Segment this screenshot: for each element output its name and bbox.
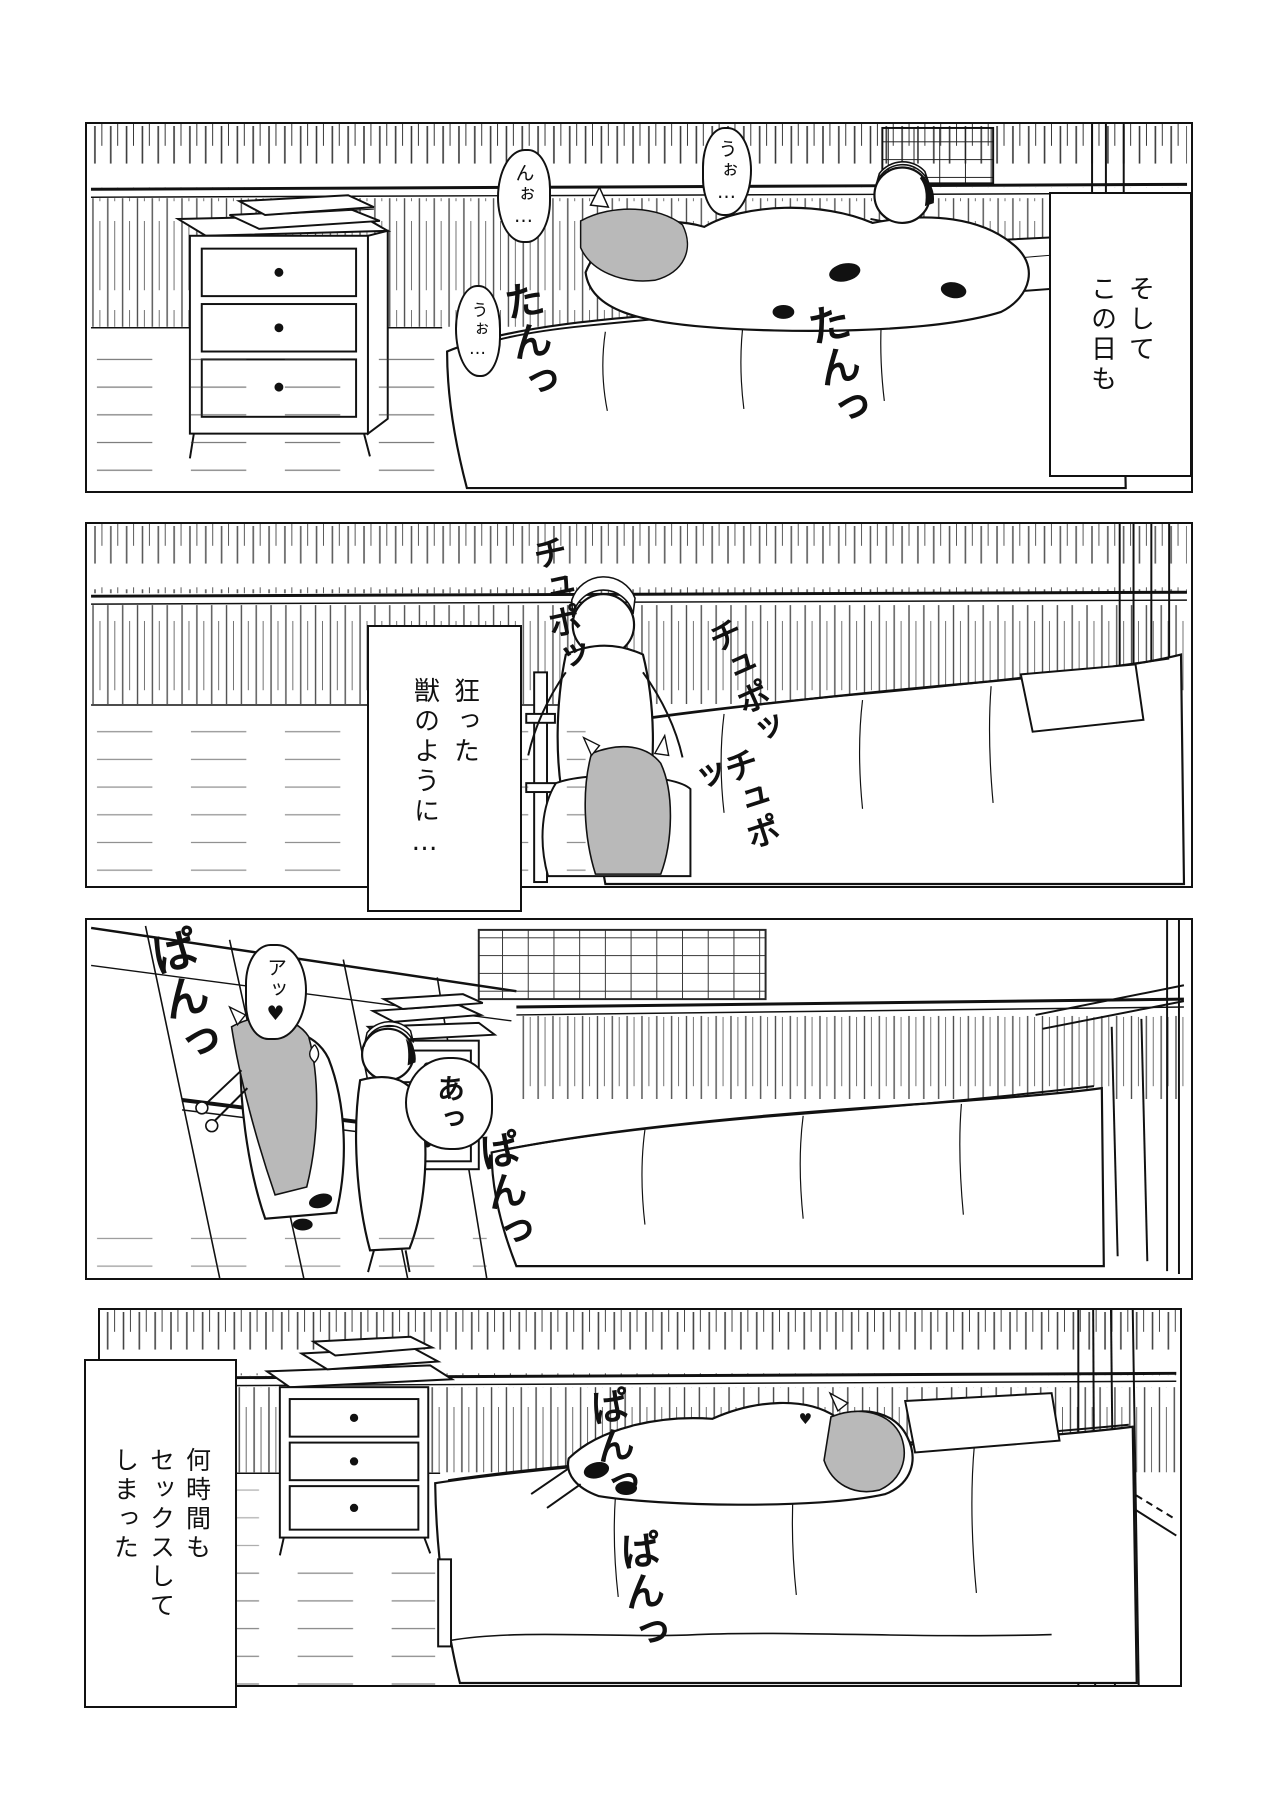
bed bbox=[492, 1086, 1104, 1266]
panel-4: 何時間も セックスして しまった ぱんっ ぱんっ ♥ bbox=[98, 1308, 1182, 1687]
panel-3: アッ♥ あっ ぱんっ ぱんっ bbox=[85, 918, 1193, 1280]
speech-bubble: んぉ… bbox=[497, 149, 551, 243]
speech-bubble: うぉ… bbox=[455, 285, 501, 377]
head bbox=[362, 1029, 413, 1080]
caption-line: この日も bbox=[1083, 275, 1121, 395]
ceiling-hatch bbox=[91, 524, 1187, 593]
dresser bbox=[267, 1365, 452, 1555]
floorboards bbox=[91, 1217, 487, 1278]
bubble-text: んぉ… bbox=[511, 163, 538, 229]
bubble-text: あっ bbox=[429, 1074, 469, 1134]
speech-bubble: あっ bbox=[405, 1057, 493, 1150]
hand bbox=[196, 1102, 208, 1114]
hair bbox=[824, 1411, 904, 1491]
ceiling-hatch bbox=[91, 124, 1187, 187]
caption-line: 狂った bbox=[445, 677, 485, 861]
caption-line: 何時間も bbox=[179, 1447, 215, 1621]
caption-line: そして bbox=[1121, 275, 1159, 395]
bubble-text: うぉ… bbox=[466, 301, 491, 361]
hand bbox=[206, 1120, 218, 1132]
caption-line: 獣のように… bbox=[405, 677, 445, 861]
horn bbox=[591, 187, 609, 207]
bedpost bbox=[438, 1559, 451, 1646]
bubble-text: うぉ… bbox=[714, 139, 741, 205]
window bbox=[479, 930, 766, 999]
caption-line: セックスして bbox=[143, 1447, 179, 1621]
manga-page: そして この日も うぉ… んぉ… うぉ… たんっ たんっ bbox=[0, 0, 1280, 1817]
narration-box: 何時間も セックスして しまった bbox=[84, 1359, 237, 1708]
sfx-pan-2: ぱんっ bbox=[614, 1528, 667, 1655]
panel-1-artwork bbox=[87, 124, 1191, 491]
caption-line: しまった bbox=[107, 1447, 143, 1621]
cow-patch bbox=[773, 305, 795, 319]
pillow bbox=[1021, 664, 1144, 731]
head bbox=[874, 168, 929, 223]
ceiling-hatch bbox=[104, 1310, 1177, 1375]
panel-2-artwork bbox=[87, 524, 1191, 886]
panel-2: 狂った 獣のように… チュポッ チュポッ チュポッ bbox=[85, 522, 1193, 888]
hair bbox=[585, 747, 670, 874]
books-on-dresser bbox=[373, 994, 483, 1022]
panel-1: そして この日も うぉ… んぉ… うぉ… たんっ たんっ bbox=[85, 122, 1193, 493]
heart-mark: ♥ bbox=[797, 1410, 812, 1429]
bubble-text: アッ♥ bbox=[262, 957, 291, 1027]
narration-box: そして この日も bbox=[1049, 192, 1192, 477]
narration-box: 狂った 獣のように… bbox=[367, 625, 522, 912]
floorboards bbox=[91, 334, 445, 491]
